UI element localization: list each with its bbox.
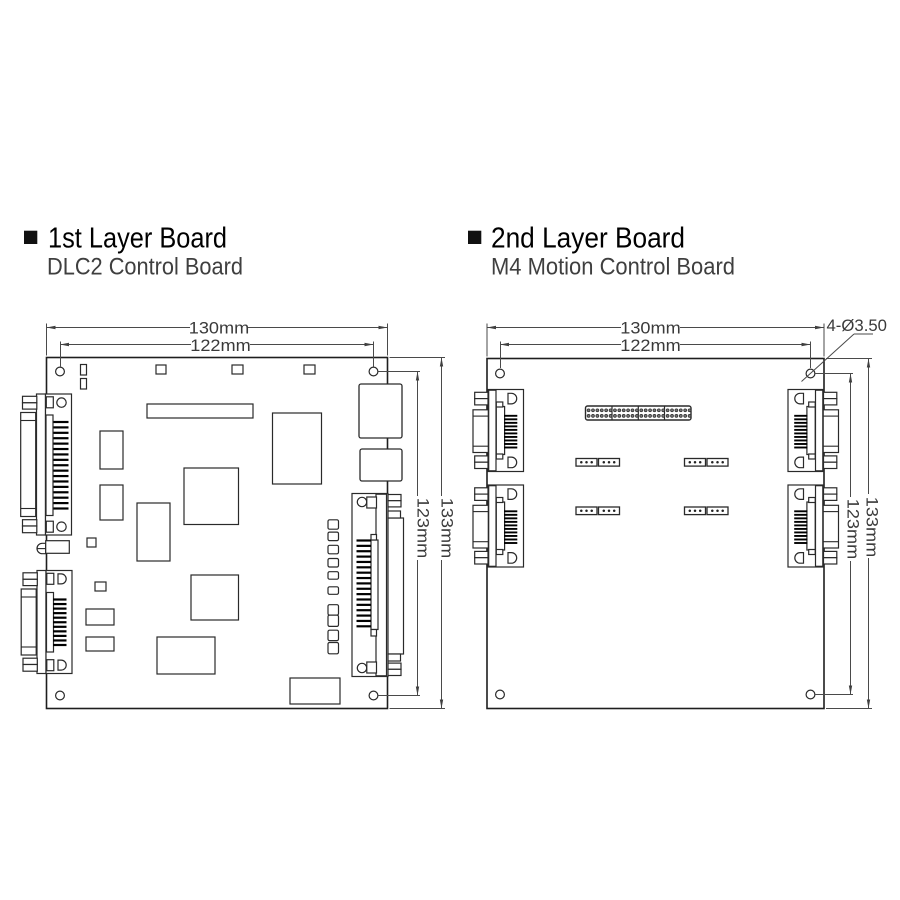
svg-text:122mm: 122mm (190, 336, 251, 355)
svg-text:4-Ø3.50: 4-Ø3.50 (827, 316, 888, 335)
svg-text:130mm: 130mm (189, 319, 250, 338)
svg-text:M4 Motion Control Board: M4 Motion Control Board (491, 254, 735, 281)
svg-text:122mm: 122mm (620, 336, 681, 355)
svg-text:123mm: 123mm (844, 499, 863, 560)
svg-text:DLC2 Control Board: DLC2 Control Board (47, 254, 243, 281)
svg-text:1st Layer Board: 1st Layer Board (48, 223, 227, 255)
svg-text:2nd Layer Board: 2nd Layer Board (491, 223, 685, 255)
svg-text:130mm: 130mm (620, 319, 681, 338)
svg-text:133mm: 133mm (863, 497, 882, 558)
svg-text:123mm: 123mm (414, 498, 433, 559)
svg-text:133mm: 133mm (438, 498, 457, 559)
